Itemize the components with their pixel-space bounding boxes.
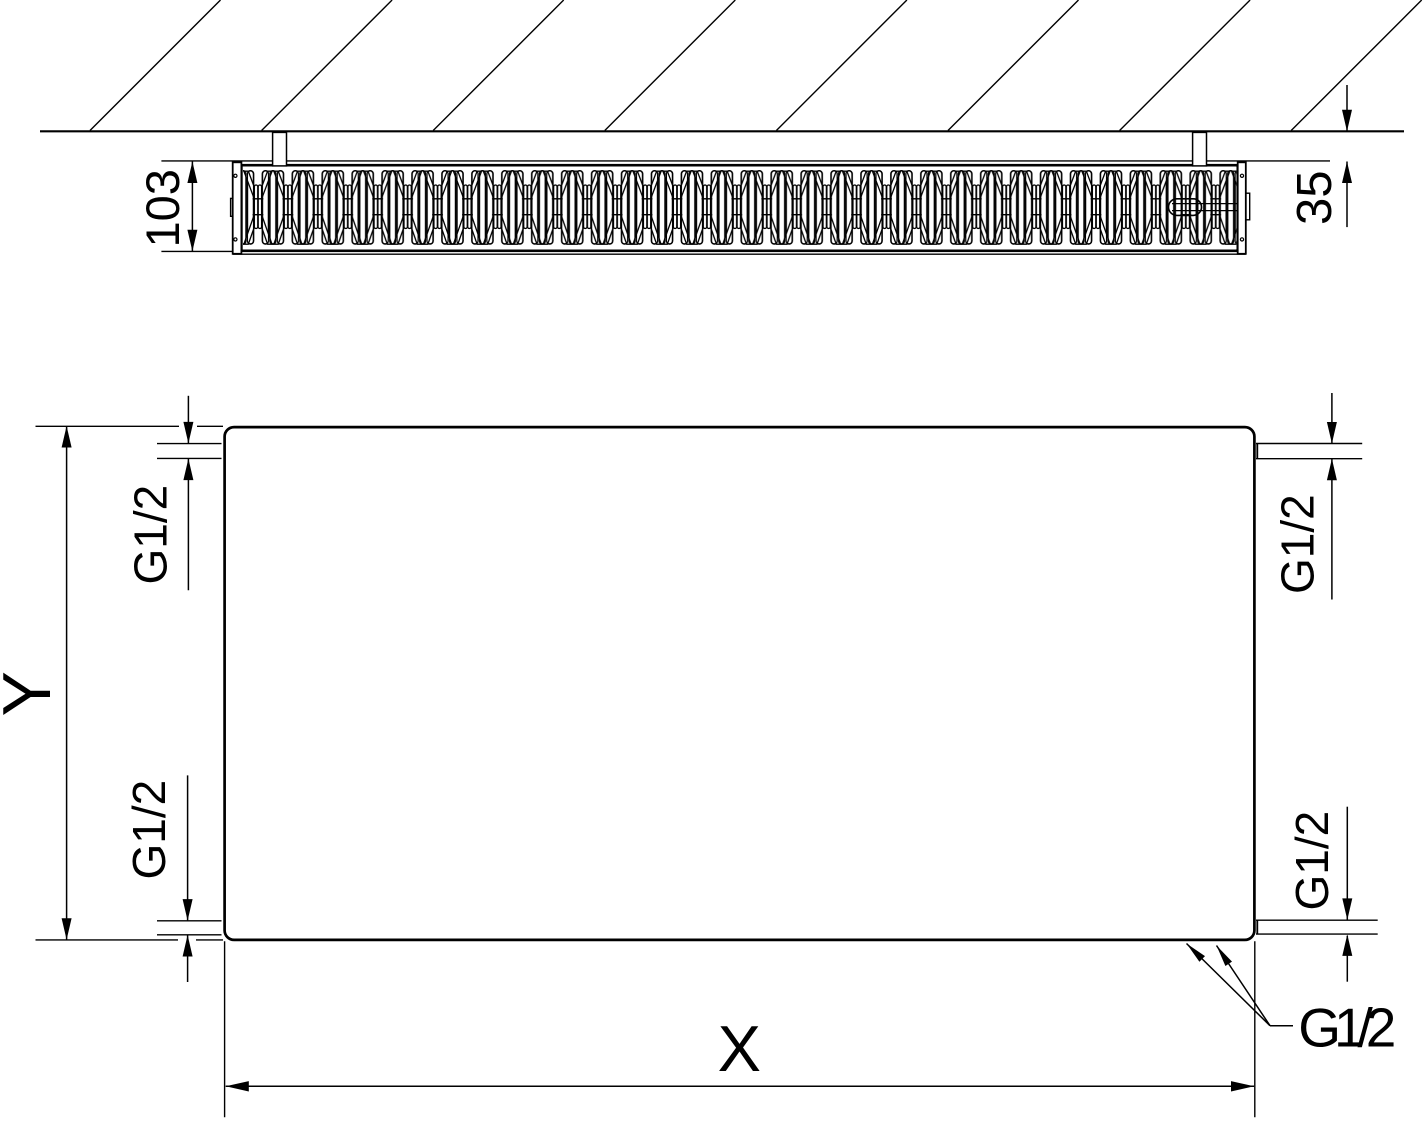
svg-text:G1/2: G1/2 <box>1272 494 1324 594</box>
svg-text:Y: Y <box>0 671 65 716</box>
svg-text:G1/2: G1/2 <box>123 780 175 880</box>
svg-text:X: X <box>718 1012 761 1085</box>
svg-text:G1/2: G1/2 <box>1286 811 1338 911</box>
svg-text:35: 35 <box>1288 170 1342 225</box>
svg-text:G1/2: G1/2 <box>125 485 177 585</box>
svg-text:G1/2: G1/2 <box>1298 997 1396 1059</box>
svg-text:103: 103 <box>136 169 189 247</box>
